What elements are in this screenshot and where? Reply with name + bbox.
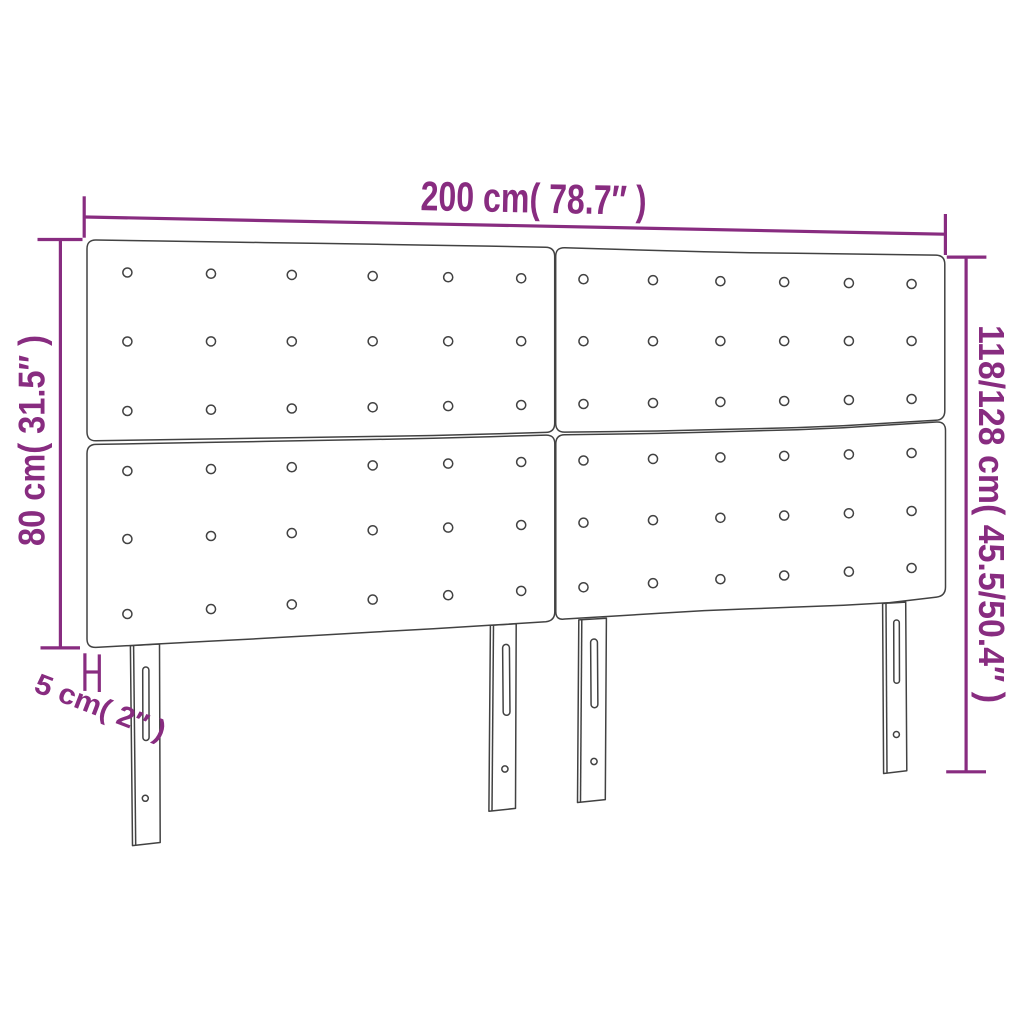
svg-text:80 cm( 31.5″ ): 80 cm( 31.5″ ) [12,335,53,546]
svg-text:200 cm( 78.7″ ): 200 cm( 78.7″ ) [420,172,647,224]
svg-text:118/128 cm( 45.5/50.4″ ): 118/128 cm( 45.5/50.4″ ) [971,325,1012,703]
